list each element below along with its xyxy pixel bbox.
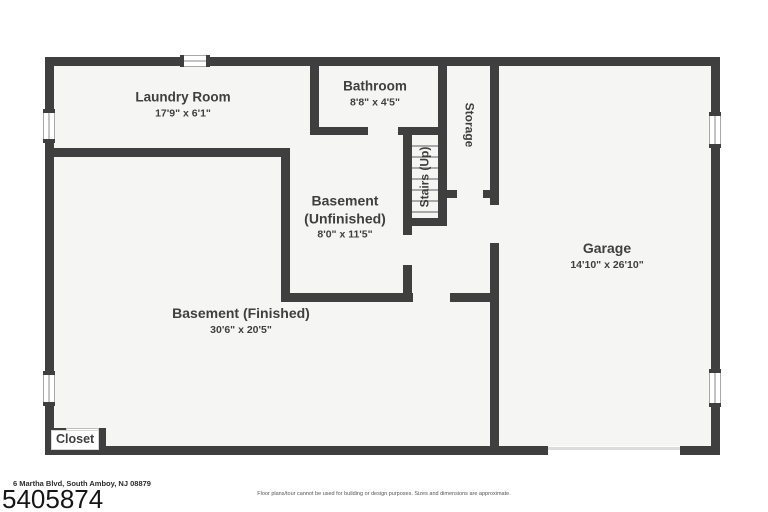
room-dimensions: 17'9" x 6'1" xyxy=(135,107,230,120)
room-label-storage: Storage xyxy=(462,103,477,148)
room-label-basement-unfinished: Basement (Unfinished) 8'0" x 11'5" xyxy=(304,192,386,241)
interior-wall-hall-left-upper xyxy=(403,127,412,235)
room-name: Storage xyxy=(462,103,477,148)
mls-number: 5405874 xyxy=(2,486,103,512)
room-dimensions: 8'8" x 4'5" xyxy=(343,96,407,109)
room-label-basement-finished: Basement (Finished) 30'6" x 20'5" xyxy=(172,305,310,337)
floor-plan: Laundry Room 17'9" x 6'1" Bathroom 8'8" … xyxy=(0,0,768,512)
window-icon xyxy=(43,109,55,143)
window-icon xyxy=(709,112,721,148)
garage-door-icon xyxy=(548,447,680,450)
room-name: Bathroom xyxy=(343,79,407,96)
interior-wall-hall-left-lower xyxy=(403,265,412,302)
interior-wall-garage-left-lower xyxy=(490,243,499,455)
room-name: Laundry Room xyxy=(135,90,230,107)
room-name: (Unfinished) xyxy=(304,210,386,228)
room-label-stairs: Stairs (Up) xyxy=(418,147,433,208)
disclaimer-text: Floor plans/tour cannot be used for buil… xyxy=(0,491,768,497)
room-name: Basement (Finished) xyxy=(172,305,310,323)
interior-wall-storage-bottom-left xyxy=(438,190,457,198)
floor-plan-page: Laundry Room 17'9" x 6'1" Bathroom 8'8" … xyxy=(0,0,768,512)
interior-wall-storage-left xyxy=(438,57,447,226)
room-dimensions: 30'6" x 20'5" xyxy=(172,324,310,337)
window-icon xyxy=(709,369,721,407)
room-dimensions: 14'10" x 26'10" xyxy=(570,259,643,272)
room-label-closet: Closet xyxy=(51,430,99,450)
room-name: Basement xyxy=(304,192,386,210)
window-icon xyxy=(43,371,55,406)
outer-wall-top xyxy=(45,57,720,66)
interior-wall-basement-divider xyxy=(281,148,290,302)
interior-wall-bathroom-left xyxy=(310,57,319,135)
room-label-garage: Garage 14'10" x 26'10" xyxy=(570,240,643,272)
interior-wall-laundry-bottom xyxy=(45,148,290,157)
window-icon xyxy=(180,55,210,67)
interior-wall-bathroom-bottom xyxy=(310,127,368,135)
interior-wall-unfinished-bottom-left xyxy=(281,293,413,302)
interior-wall-garage-left-upper xyxy=(490,57,499,205)
garage-door-opening xyxy=(548,446,680,455)
room-name: Garage xyxy=(570,240,643,258)
room-dimensions: 8'0" x 11'5" xyxy=(304,228,386,241)
room-label-bathroom: Bathroom 8'8" x 4'5" xyxy=(343,79,407,110)
room-label-laundry: Laundry Room 17'9" x 6'1" xyxy=(135,90,230,121)
room-name: Stairs (Up) xyxy=(418,147,433,208)
